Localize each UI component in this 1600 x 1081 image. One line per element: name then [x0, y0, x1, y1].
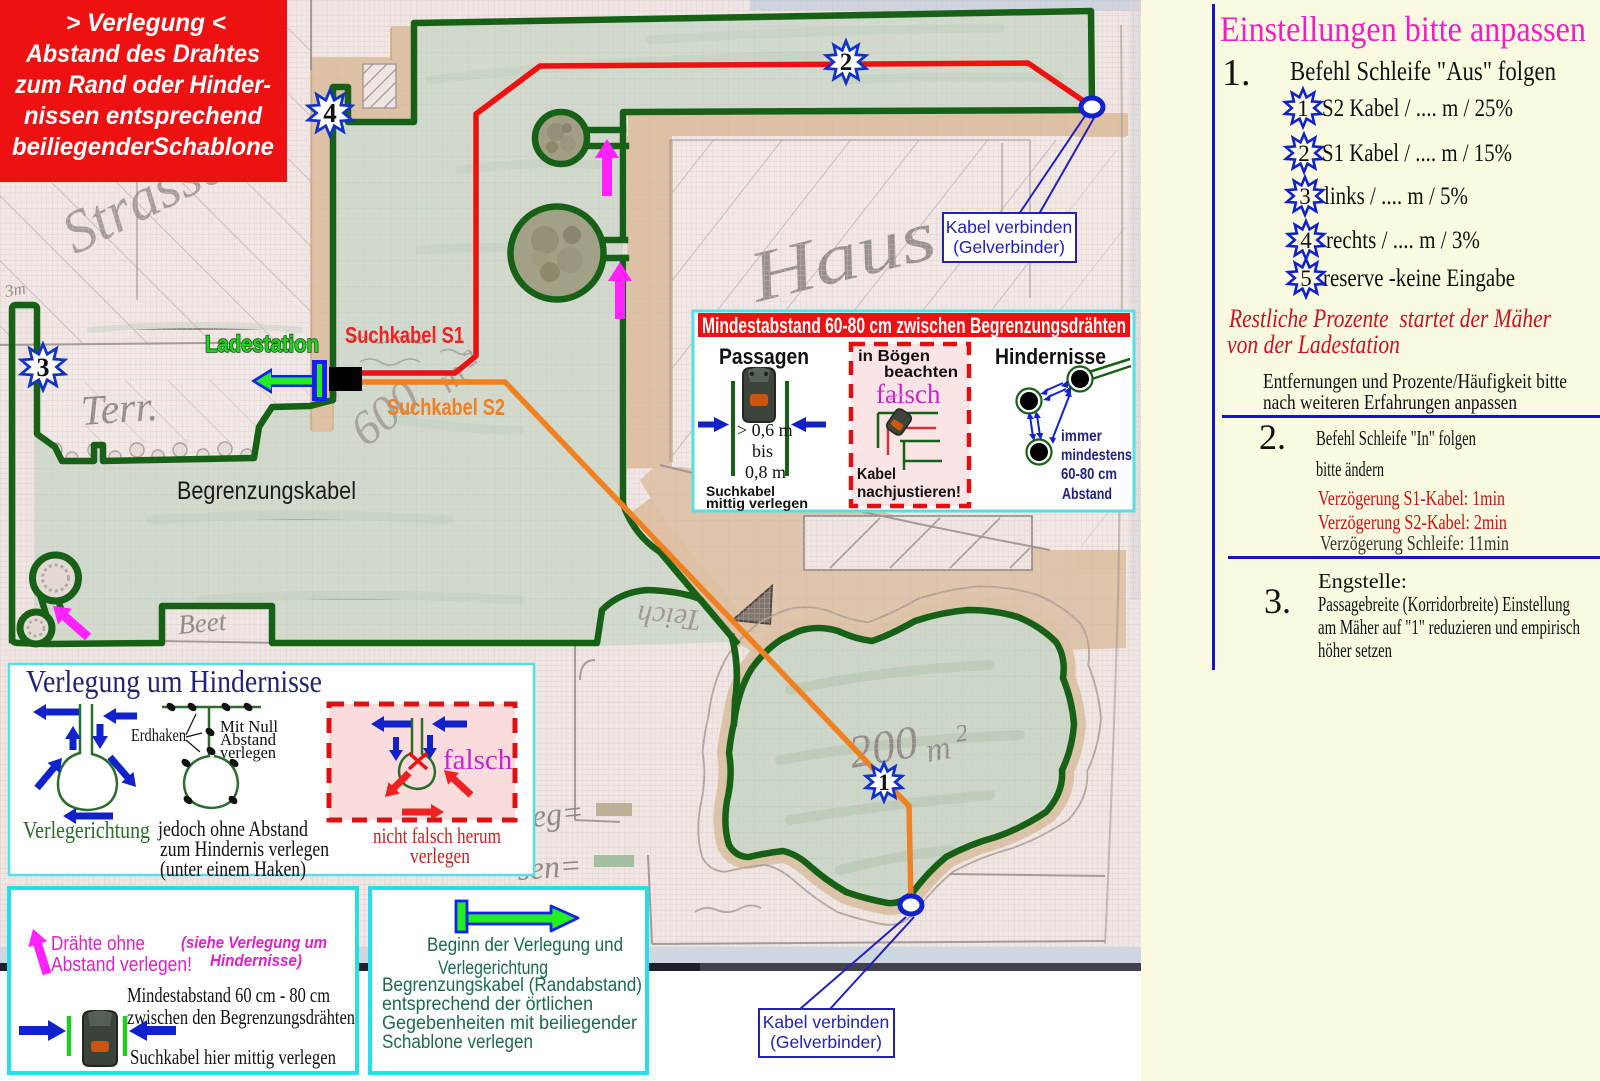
svg-text:S1 Kabel / .... m / 15%: S1 Kabel / .... m / 15% [1322, 140, 1512, 167]
svg-text:Kabel verbinden: Kabel verbinden [763, 1012, 889, 1032]
svg-text:nachjustieren!: nachjustieren! [857, 484, 961, 501]
svg-text:3: 3 [1299, 184, 1311, 209]
svg-text:Abstand des Drahtes: Abstand des Drahtes [25, 40, 260, 68]
svg-text:Kabel verbinden: Kabel verbinden [946, 217, 1072, 237]
svg-text:3: 3 [37, 353, 50, 382]
svg-text:Verzögerung Schleife: 11min: Verzögerung Schleife: 11min [1320, 531, 1509, 555]
svg-text:Hindernisse: Hindernisse [995, 344, 1106, 369]
svg-text:zum Rand oder Hinder-: zum Rand oder Hinder- [14, 71, 271, 99]
svg-text:(Gelverbinder): (Gelverbinder) [953, 237, 1065, 257]
svg-text:S2 Kabel / .... m / 25%: S2 Kabel / .... m / 25% [1322, 95, 1513, 122]
svg-text:4: 4 [1300, 228, 1312, 253]
svg-text:immer: immer [1061, 428, 1102, 445]
svg-text:reserve -keine Eingabe: reserve -keine Eingabe [1323, 265, 1515, 292]
svg-text:Passagebreite (Korridorbreite): Passagebreite (Korridorbreite) Einstellu… [1318, 592, 1570, 616]
svg-text:verlegen: verlegen [410, 843, 470, 868]
svg-text:Abstand: Abstand [1062, 486, 1112, 503]
svg-text:von der Ladestation: von der Ladestation [1227, 330, 1400, 359]
svg-text:Gegebenheiten mit beiliegender: Gegebenheiten mit beiliegender [382, 1013, 638, 1034]
svg-text:2: 2 [840, 49, 853, 76]
svg-text:0,8 m: 0,8 m [745, 462, 786, 482]
svg-text:nach weiteren Erfahrungen anpa: nach weiteren Erfahrungen anpassen [1263, 390, 1517, 414]
svg-text:Suchkabel S2: Suchkabel S2 [387, 394, 505, 420]
svg-text:Abstand verlegen!: Abstand verlegen! [51, 954, 192, 976]
svg-text:entsprechend der örtlichen: entsprechend der örtlichen [382, 994, 593, 1015]
svg-text:1: 1 [878, 770, 890, 795]
svg-text:Verlegerichtung: Verlegerichtung [23, 818, 150, 844]
svg-text:verlegen: verlegen [220, 743, 276, 762]
svg-text:falsch: falsch [876, 379, 941, 409]
svg-text:(siehe Verlegung um: (siehe Verlegung um [181, 933, 327, 952]
svg-text:rechts / .... m / 3%: rechts / .... m / 3% [1326, 227, 1480, 254]
svg-text:(unter einem Haken): (unter einem Haken) [160, 856, 306, 881]
svg-text:Befehl Schleife "Aus" folgen: Befehl Schleife "Aus" folgen [1290, 56, 1556, 86]
svg-text:Begrenzungskabel (Randabstand): Begrenzungskabel (Randabstand) [382, 975, 642, 996]
svg-text:höher setzen: höher setzen [1318, 638, 1392, 662]
svg-text:beiliegenderSchablone: beiliegenderSchablone [12, 133, 274, 161]
svg-text:(Gelverbinder): (Gelverbinder) [770, 1032, 882, 1052]
svg-text:Beginn der Verlegung und: Beginn der Verlegung und [427, 935, 623, 956]
svg-text:Engstelle:: Engstelle: [1318, 569, 1407, 593]
svg-text:> Verlegung <: > Verlegung < [66, 9, 226, 37]
svg-text:Mindestabstand 60 cm - 80 cm: Mindestabstand 60 cm - 80 cm [127, 983, 330, 1007]
svg-text:Drähte ohne: Drähte ohne [51, 933, 145, 955]
svg-text:falsch: falsch [443, 744, 513, 776]
svg-text:60-80 cm: 60-80 cm [1061, 466, 1117, 483]
svg-text:1: 1 [1297, 96, 1309, 121]
svg-text:Mindestabstand 60-80 cm zwisch: Mindestabstand 60-80 cm zwischen Begrenz… [702, 313, 1126, 338]
svg-text:zwischen den Begrenzungsdrähte: zwischen den Begrenzungsdrähten [127, 1005, 355, 1029]
svg-text:5: 5 [1300, 266, 1312, 291]
svg-text:links / .... m / 5%: links / .... m / 5% [1324, 183, 1468, 210]
svg-text:Schablone verlegen: Schablone verlegen [382, 1032, 533, 1053]
svg-text:1.: 1. [1222, 52, 1251, 94]
svg-text:bis: bis [752, 441, 773, 461]
svg-text:3m: 3m [2, 279, 27, 301]
svg-text:Einstellungen bitte anpassen: Einstellungen bitte anpassen [1220, 9, 1586, 49]
svg-text:Restliche Prozente startet de: Restliche Prozente startet der Mäher [1228, 304, 1552, 333]
svg-text:bitte ändern: bitte ändern [1316, 457, 1384, 481]
svg-text:mittig verlegen: mittig verlegen [706, 495, 808, 511]
svg-text:Kabel: Kabel [857, 466, 896, 483]
svg-text:Verlegung um Hindernisse: Verlegung um Hindernisse [26, 663, 322, 699]
svg-text:4: 4 [323, 98, 337, 128]
svg-text:2: 2 [1298, 141, 1310, 166]
svg-text:Suchkabel hier mittig verlegen: Suchkabel hier mittig verlegen [130, 1045, 336, 1069]
svg-text:in Bögen: in Bögen [858, 348, 930, 365]
svg-text:Suchkabel S1: Suchkabel S1 [345, 322, 464, 348]
svg-text:mindestens: mindestens [1061, 447, 1132, 464]
svg-text:Begrenzungskabel: Begrenzungskabel [177, 477, 356, 505]
svg-text:Passagen: Passagen [719, 344, 809, 369]
svg-text:Verzögerung S1-Kabel: 1min: Verzögerung S1-Kabel: 1min [1318, 486, 1505, 510]
svg-text:3.: 3. [1264, 581, 1291, 621]
svg-text:2.: 2. [1259, 417, 1286, 457]
svg-text:Beet: Beet [177, 606, 229, 640]
svg-text:nissen entsprechend: nissen entsprechend [24, 102, 263, 130]
svg-text:> 0,6 m: > 0,6 m [737, 420, 793, 440]
svg-text:am Mäher auf "1" reduzieren un: am Mäher auf "1" reduzieren und empirisc… [1318, 615, 1580, 639]
svg-text:Befehl Schleife "In" folgen: Befehl Schleife "In" folgen [1316, 426, 1476, 450]
svg-text:Ladestation: Ladestation [205, 331, 319, 358]
svg-text:Hindernisse): Hindernisse) [210, 951, 302, 970]
svg-text:Erdhaken: Erdhaken [131, 725, 186, 745]
